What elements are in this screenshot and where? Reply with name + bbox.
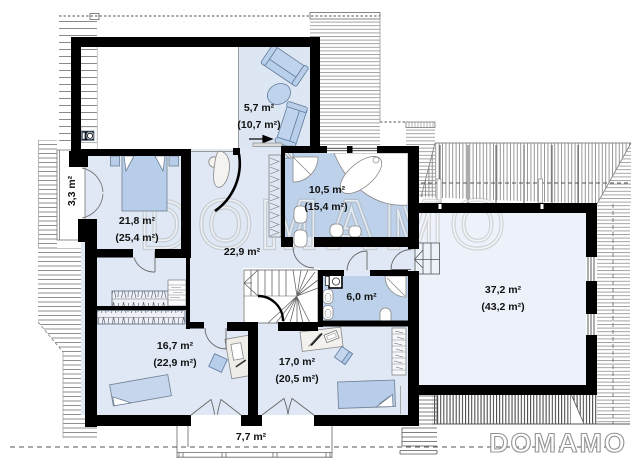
svg-text:17,0 m²: 17,0 m² [279, 356, 316, 368]
svg-text:37,2 m²: 37,2 m² [485, 284, 522, 296]
svg-text:DOMAMO: DOMAMO [489, 428, 627, 458]
svg-text:7,7 m²: 7,7 m² [236, 431, 267, 443]
svg-text:(15,4 m²): (15,4 m²) [304, 201, 347, 213]
svg-text:(43,2 m²): (43,2 m²) [481, 301, 524, 313]
svg-text:16,7 m²: 16,7 m² [157, 340, 194, 352]
svg-text:6,0 m²: 6,0 m² [346, 291, 377, 303]
svg-text:(10,7 m²): (10,7 m²) [237, 119, 280, 131]
svg-text:5,7 m²: 5,7 m² [244, 102, 275, 114]
svg-text:(22,9 m²): (22,9 m²) [153, 357, 196, 369]
svg-text:10,5 m²: 10,5 m² [309, 184, 346, 196]
svg-text:22,9 m²: 22,9 m² [224, 246, 261, 258]
svg-text:(25,4 m²): (25,4 m²) [115, 232, 158, 244]
svg-text:3,3 m²: 3,3 m² [66, 175, 78, 206]
svg-text:(20,5 m²): (20,5 m²) [275, 373, 318, 385]
svg-text:21,8 m²: 21,8 m² [119, 215, 156, 227]
svg-text:DOMAMO: DOMAMO [140, 186, 513, 263]
